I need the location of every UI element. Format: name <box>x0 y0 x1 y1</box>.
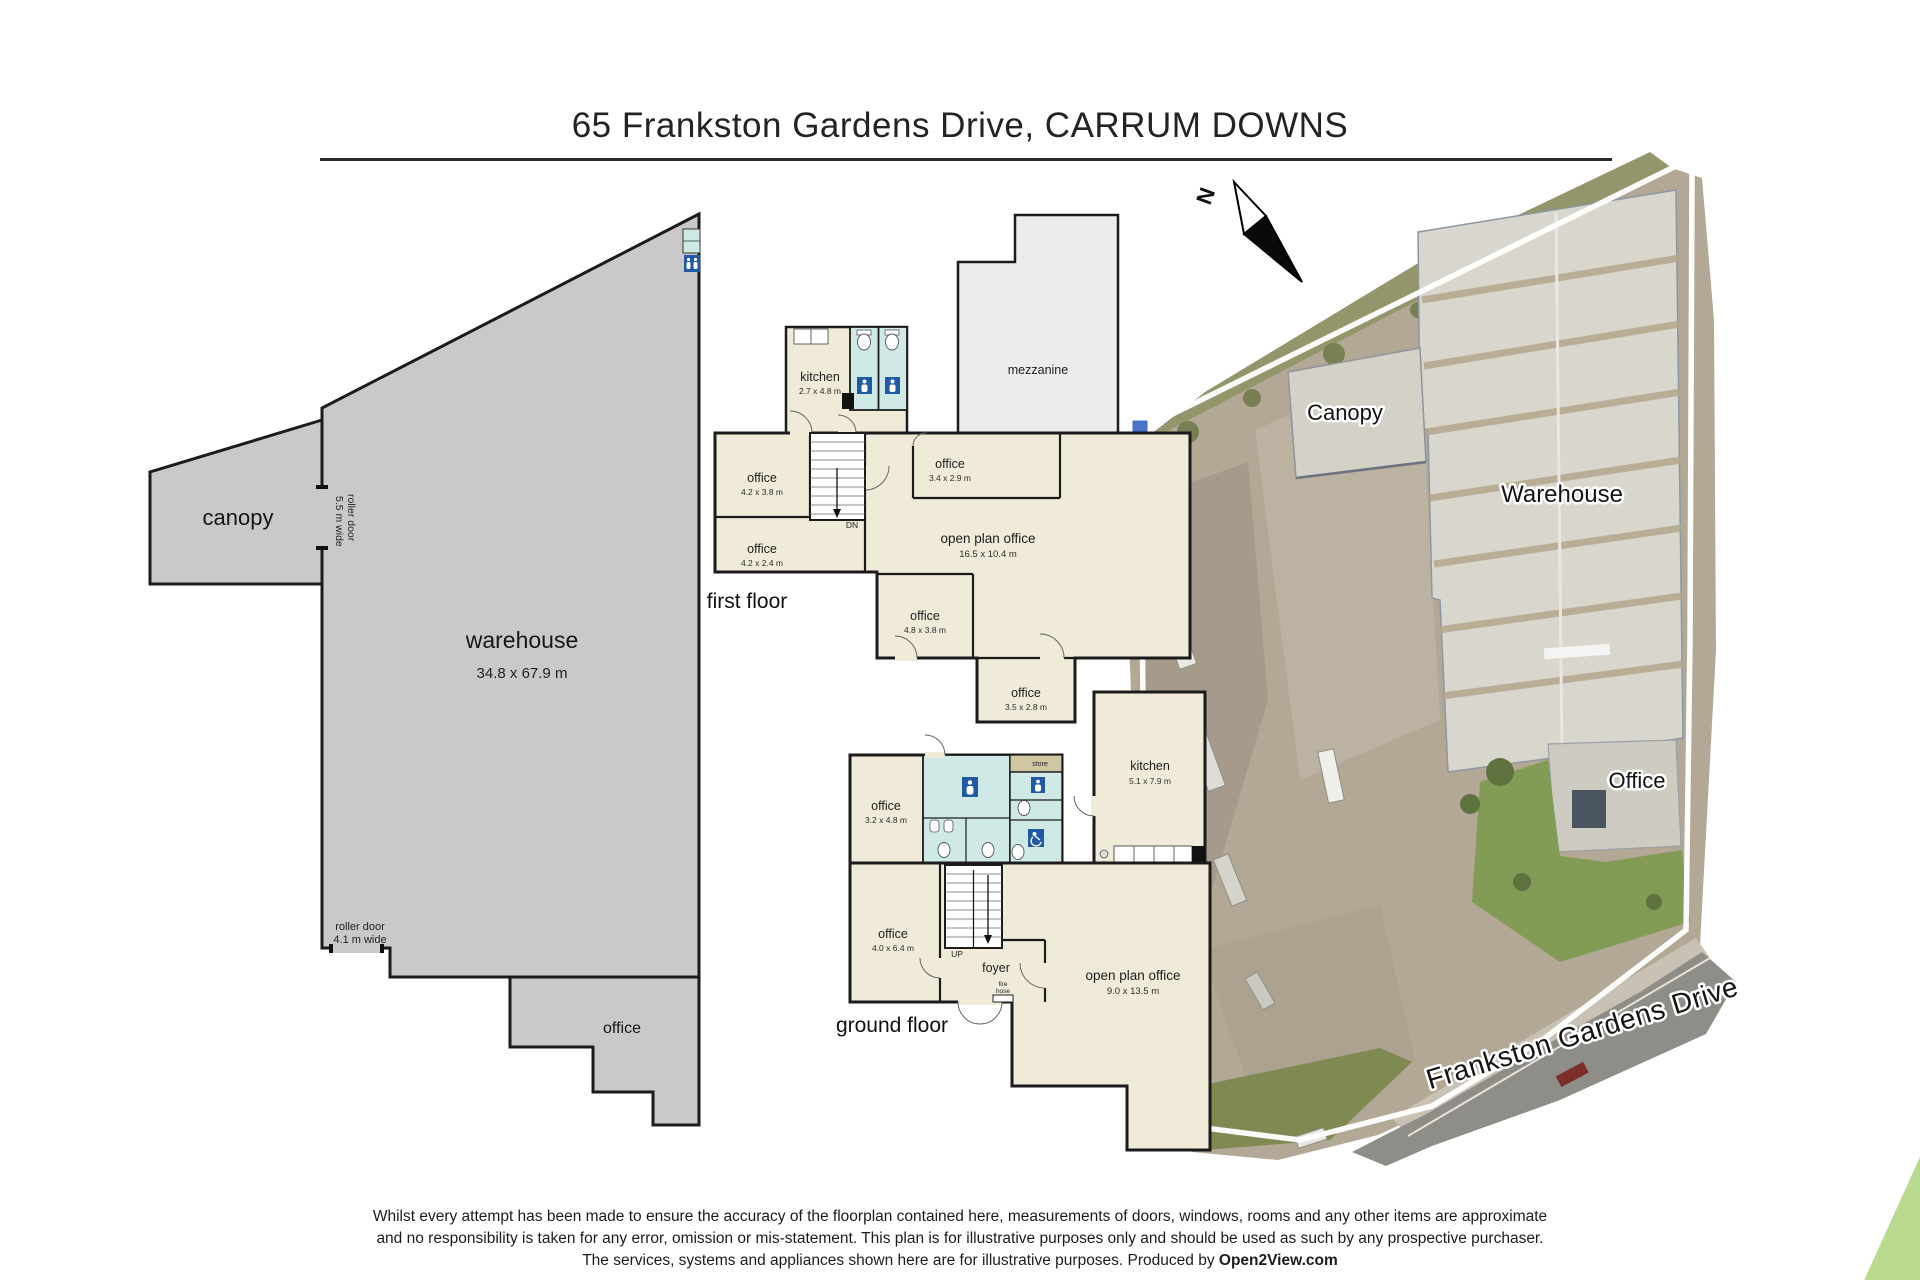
gf-openplan-dims: 9.0 x 13.5 m <box>1107 986 1159 997</box>
ff-office2-dims: 4.2 x 2.4 m <box>741 558 783 568</box>
warehouse-office-label: office <box>603 1020 641 1037</box>
ff-mezzanine-label: mezzanine <box>1008 363 1068 377</box>
warehouse-wc <box>683 229 700 272</box>
aerial-canopy-label: Canopy <box>1307 400 1383 425</box>
ff-kitchen-dims: 2.7 x 4.8 m <box>799 386 841 396</box>
ff-dn-label: DN <box>846 520 858 530</box>
gf-office2-dims: 4.0 x 6.4 m <box>872 943 914 953</box>
ff-office3-label: office <box>935 457 965 471</box>
disclaimer-line1: Whilst every attempt has been made to en… <box>0 1206 1920 1228</box>
accessible-wc-sign-icon <box>1028 829 1044 847</box>
ff-kitchen-label: kitchen <box>800 370 840 384</box>
ff-stairs: DN <box>810 433 865 530</box>
ff-office2-label: office <box>747 542 777 556</box>
canopy-outline <box>150 420 322 584</box>
warehouse-plan: canopy warehouse 34.8 x 67.9 m roller do… <box>150 214 700 1125</box>
first-floor-plan: DN kitchen 2.7 x 4.8 m mezzanine office … <box>707 215 1190 722</box>
disclaimer-line3: The services, systems and appliances sho… <box>0 1250 1920 1272</box>
door-jamb <box>316 485 328 489</box>
floorplan-canvas: Canopy Warehouse Office Frankston Garden… <box>0 0 1920 1280</box>
ground-floor-label: ground floor <box>836 1014 948 1037</box>
ff-office5-label: office <box>1011 686 1041 700</box>
gf-office1-dims: 3.2 x 4.8 m <box>865 815 907 825</box>
ff-office4-label: office <box>910 609 940 623</box>
ff-office1-dims: 4.2 x 3.8 m <box>741 487 783 497</box>
roller-door-side-label-2: 5.5 m wide <box>333 496 345 547</box>
gf-foyer-label: foyer <box>982 961 1010 975</box>
warehouse-dims: 34.8 x 67.9 m <box>477 665 568 682</box>
gf-kitchen-door-gap <box>1091 796 1097 816</box>
ff-office3-dims: 3.4 x 2.9 m <box>929 473 971 483</box>
fire-hose-label-1: fire <box>998 981 1007 988</box>
gf-kitchen-counter <box>1100 846 1205 863</box>
floorplan-page: 65 Frankston Gardens Drive, CARRUM DOWNS <box>0 0 1920 1280</box>
ff-office5-dims: 3.5 x 2.8 m <box>1005 702 1047 712</box>
first-floor-label: first floor <box>707 590 788 613</box>
roller-door-bottom-label-1: roller door <box>335 921 385 933</box>
ff-toilets <box>842 327 907 410</box>
aerial-photo: Canopy Warehouse Office Frankston Garden… <box>1128 152 1742 1166</box>
gf-store-label: store <box>1032 761 1048 768</box>
warehouse-label: warehouse <box>465 627 579 653</box>
roller-door-side-gap <box>317 489 327 546</box>
aerial-warehouse-label: Warehouse <box>1501 481 1623 508</box>
gf-stairs: UP <box>945 865 1002 959</box>
ground-floor-plan: UP fire hose office 3.2 x 4.8 m store ki… <box>836 692 1210 1150</box>
gf-office2-label: office <box>878 927 908 941</box>
door-jamb <box>316 546 328 550</box>
north-letter: N <box>1191 184 1220 207</box>
gf-openplan-label: open plan office <box>1085 968 1180 983</box>
roller-door-bottom-label-2: 4.1 m wide <box>333 934 386 946</box>
brand-name: Open2View.com <box>1219 1252 1338 1269</box>
gf-lower-outline <box>850 863 1210 1150</box>
gf-office1-label: office <box>871 799 901 813</box>
north-arrow: N <box>1191 182 1302 282</box>
ff-office4-dims: 4.8 x 3.8 m <box>904 625 946 635</box>
gf-kitchen-dims: 5.1 x 7.9 m <box>1129 776 1171 786</box>
service-shaft <box>842 393 854 409</box>
ff-office1-label: office <box>747 471 777 485</box>
fire-hose-label-2: hose <box>996 988 1010 995</box>
gf-up-label: UP <box>951 949 963 959</box>
canopy-label: canopy <box>203 505 274 530</box>
roller-door-side-label-1: roller door <box>345 494 357 542</box>
ff-openplan-dims: 16.5 x 10.4 m <box>959 549 1017 560</box>
mezzanine-outline <box>958 215 1118 433</box>
disclaimer-line2: and no responsibility is taken for any e… <box>0 1228 1920 1250</box>
aerial-office-roof <box>1548 740 1681 852</box>
ff-kitchen-sink <box>794 329 828 344</box>
ff-openplan-label: open plan office <box>940 531 1035 546</box>
aerial-office-label: Office <box>1608 768 1665 793</box>
disclaimer-line3-text: The services, systems and appliances sho… <box>582 1252 1219 1269</box>
door-jamb <box>329 944 333 953</box>
wc-sign-icon <box>684 255 700 272</box>
office-window <box>1572 790 1606 828</box>
disclaimer: Whilst every attempt has been made to en… <box>0 1206 1920 1272</box>
gf-kitchen-label: kitchen <box>1130 759 1170 773</box>
